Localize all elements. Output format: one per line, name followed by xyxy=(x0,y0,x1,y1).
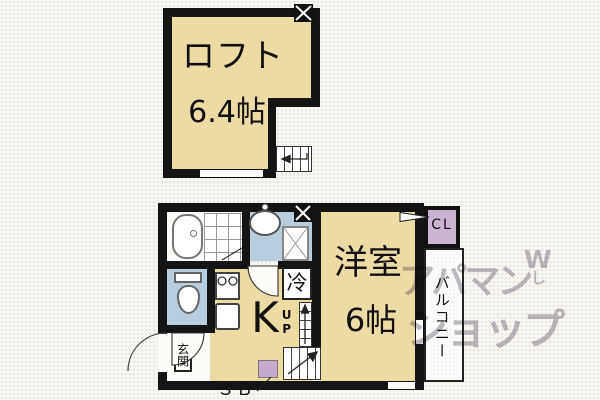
washroom-vent-x xyxy=(296,206,310,220)
up-label: UP xyxy=(280,306,293,338)
fridge-label: 冷 xyxy=(282,272,312,294)
floorplan-canvas: ロフト 6.4帖 K UP 冷 洋室 6帖 CL バルコニー 玄関 ＳＢ アパマ… xyxy=(0,0,600,400)
bath-door-line xyxy=(222,248,242,260)
entrance-label: 玄関 xyxy=(176,341,189,369)
loft-vent-x xyxy=(296,6,311,20)
closet-label: CL xyxy=(424,218,460,233)
loft-label: ロフト xyxy=(178,39,288,74)
washroom-door-arc xyxy=(248,266,278,296)
room-size-label: 6帖 xyxy=(328,304,414,338)
shoebox-pointer xyxy=(257,377,271,391)
loft-stairs-arrow xyxy=(282,153,307,163)
stove-burners xyxy=(218,277,237,285)
plan-overlay xyxy=(0,0,600,400)
stairs-arrow xyxy=(288,352,317,374)
shoebox-label: ＳＢ xyxy=(214,382,258,400)
room-label: 洋室 xyxy=(322,246,414,282)
washbasin-icon xyxy=(250,204,280,235)
washing-machine-x xyxy=(284,228,307,259)
up-arrow xyxy=(302,305,309,344)
front-door-arc xyxy=(128,333,166,371)
kitchen-label: K xyxy=(248,299,282,337)
balcony-label: バルコニー xyxy=(433,254,449,380)
loft-size-label: 6.4帖 xyxy=(172,97,282,129)
